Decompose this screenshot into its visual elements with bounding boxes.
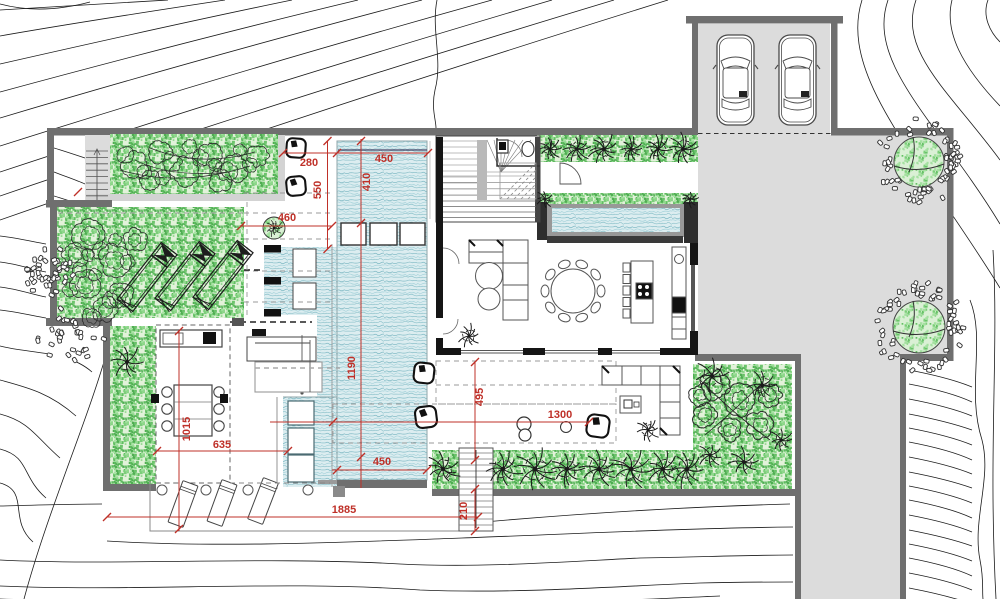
- svg-text:450: 450: [375, 153, 393, 165]
- svg-text:460: 460: [278, 212, 296, 224]
- svg-text:410: 410: [361, 173, 373, 191]
- svg-text:550: 550: [312, 181, 324, 199]
- svg-text:1015: 1015: [181, 417, 193, 441]
- svg-text:210: 210: [458, 502, 470, 520]
- svg-text:1190: 1190: [346, 356, 358, 380]
- svg-text:450: 450: [373, 456, 391, 468]
- svg-text:495: 495: [474, 388, 486, 406]
- svg-text:1885: 1885: [332, 504, 356, 516]
- svg-text:635: 635: [213, 439, 231, 451]
- svg-text:280: 280: [300, 157, 318, 169]
- svg-text:1300: 1300: [548, 409, 572, 421]
